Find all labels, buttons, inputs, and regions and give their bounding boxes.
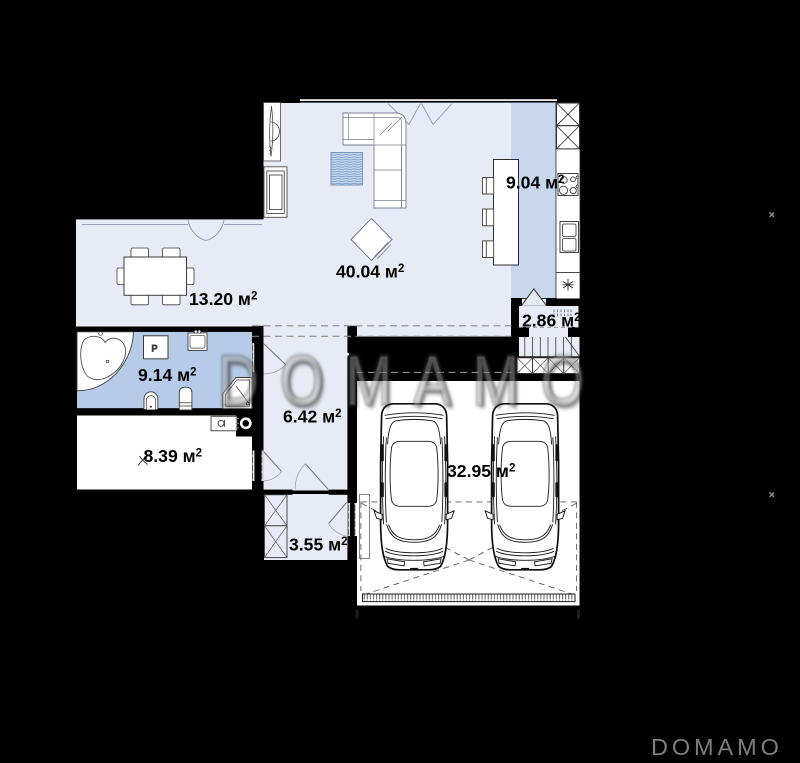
svg-text:DOMAMO: DOMAMO [651, 734, 783, 760]
svg-text:8.39 м2: 8.39 м2 [144, 446, 203, 466]
svg-text:40.04 м2: 40.04 м2 [336, 262, 404, 282]
svg-text:32.95 м2: 32.95 м2 [447, 461, 515, 481]
svg-text:9.14 м2: 9.14 м2 [138, 365, 197, 385]
svg-text:P: P [152, 344, 158, 354]
svg-text:13.20 м2: 13.20 м2 [189, 289, 257, 309]
svg-text:DOMAMO: DOMAMO [218, 343, 606, 420]
svg-text:3.55 м2: 3.55 м2 [289, 535, 348, 555]
svg-text:9.04 м2: 9.04 м2 [506, 173, 565, 193]
svg-text:2.86 м2: 2.86 м2 [522, 311, 581, 331]
